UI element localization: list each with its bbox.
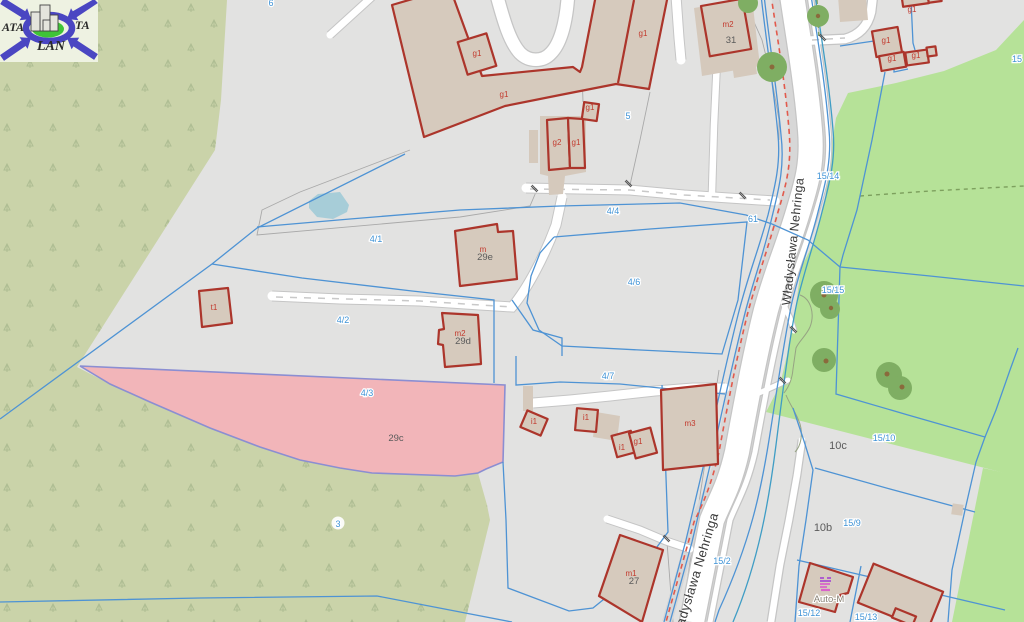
svg-text:15/10: 15/10	[873, 433, 896, 443]
svg-text:61: 61	[748, 214, 758, 224]
svg-text:3: 3	[335, 519, 340, 529]
svg-text:10b: 10b	[814, 522, 832, 534]
svg-text:5: 5	[625, 111, 630, 121]
svg-text:m: m	[480, 245, 487, 254]
svg-text:g1: g1	[572, 138, 581, 147]
svg-text:29c: 29c	[388, 433, 404, 444]
svg-text:4/7: 4/7	[602, 371, 615, 381]
svg-text:m1: m1	[625, 569, 637, 578]
svg-text:g1: g1	[634, 437, 643, 446]
svg-text:15/14: 15/14	[817, 171, 840, 181]
svg-text:4/4: 4/4	[607, 206, 620, 216]
svg-text:15/9: 15/9	[843, 518, 861, 528]
svg-text:4/2: 4/2	[337, 315, 350, 325]
svg-text:m3: m3	[684, 419, 696, 428]
svg-text:i1: i1	[531, 417, 538, 426]
svg-text:g1: g1	[586, 103, 595, 112]
svg-text:4/3: 4/3	[361, 388, 374, 398]
svg-text:15: 15	[1012, 54, 1022, 64]
svg-text:15/15: 15/15	[822, 285, 845, 295]
svg-text:TA: TA	[75, 18, 90, 32]
svg-text:LAN: LAN	[36, 39, 66, 54]
svg-text:4/1: 4/1	[370, 234, 383, 244]
svg-text:Auto-M: Auto-M	[814, 594, 845, 605]
svg-text:15/2: 15/2	[713, 556, 731, 566]
svg-text:m2: m2	[722, 20, 734, 29]
svg-text:g1: g1	[639, 29, 648, 38]
svg-text:10c: 10c	[829, 440, 847, 452]
svg-text:t1: t1	[211, 303, 218, 312]
svg-text:g1: g1	[912, 51, 921, 60]
svg-text:15/13: 15/13	[855, 612, 878, 622]
svg-text:4/6: 4/6	[628, 277, 641, 287]
svg-text:g1: g1	[908, 5, 917, 14]
svg-text:31: 31	[726, 35, 737, 46]
svg-text:g1: g1	[882, 36, 891, 45]
svg-text:g1: g1	[888, 54, 897, 63]
svg-text:6: 6	[268, 0, 273, 8]
svg-text:i1: i1	[583, 413, 590, 422]
svg-text:i1: i1	[619, 443, 626, 452]
svg-text:m2: m2	[454, 329, 466, 338]
svg-text:15/12: 15/12	[798, 608, 821, 618]
svg-text:ATA: ATA	[1, 20, 24, 34]
svg-text:g2: g2	[553, 138, 562, 147]
svg-text:g1: g1	[500, 90, 509, 99]
svg-text:g1: g1	[473, 49, 482, 58]
